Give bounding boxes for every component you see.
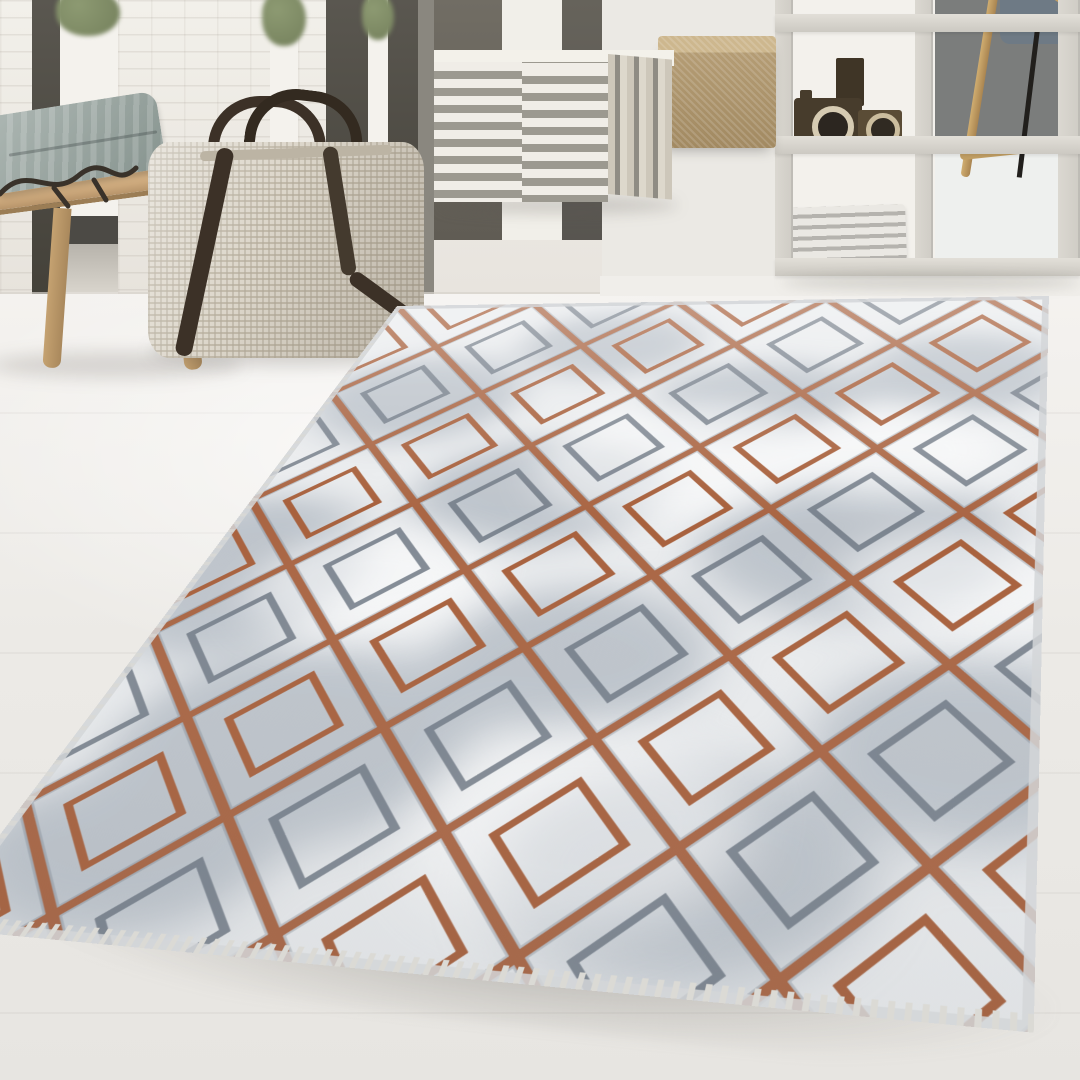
shelf-board <box>775 136 1080 154</box>
shelf-board <box>775 14 1080 32</box>
branch-decor <box>0 148 144 212</box>
cork-pouf <box>658 36 776 148</box>
room-scene: Bright interior product photo: a grey ma… <box>0 0 1080 1080</box>
pouf-front-face <box>522 62 608 202</box>
newspapers <box>789 204 907 264</box>
pouf-front-face <box>434 62 522 202</box>
sill-shadow <box>60 244 118 292</box>
shelf-floor-shadow <box>782 274 1080 290</box>
pouf-side-face <box>608 54 672 200</box>
